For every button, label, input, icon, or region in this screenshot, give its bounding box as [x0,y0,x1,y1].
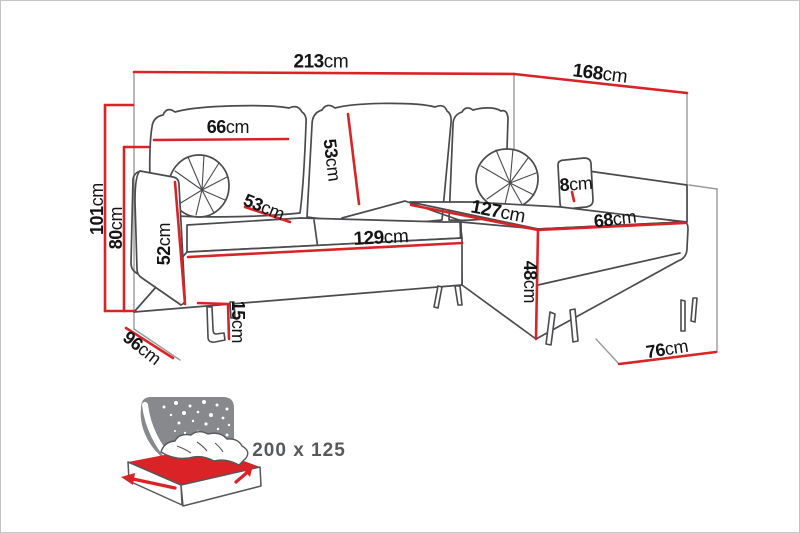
dim-label-armrest-height-52: 52cm [155,223,173,265]
dim-label-back-cushion-width-66: 66cm [207,118,249,136]
box-bottom-right-connector [596,339,619,364]
chaise-leg-right-b [691,298,697,322]
dim-label-leg-height-15: 15cm [229,301,247,343]
dim-label-chaise-width-68: 68cm [593,207,637,230]
dim-label-arm-cushion-8: 8cm [559,174,593,194]
dim-label-chaise-seat-height-48: 48cm [521,261,539,303]
sofa-leg-middle-a [434,286,442,308]
dim-label-seat-width-129: 129cm [353,227,409,249]
dim-label-backrest-height-80: 80cm [107,207,125,249]
bed-size-label: 200 x 125 [252,440,346,462]
sofa-dimension-diagram: 213cm 168cm 101cm 80cm 66cm 53cm 53cm 52… [0,0,800,533]
dim-label-back-cushion-height-53: 53cm [320,138,343,182]
chaise-leg-right-a [681,300,685,331]
dim-label-total-height-101: 101cm [88,183,106,235]
dim-label-back-width-213: 213cm [294,53,349,72]
sofa-bed-icon [121,397,261,506]
sofa-leg-middle-b [455,286,462,305]
box-right-top-connector [689,185,717,189]
sofa-leg-front-left [207,307,225,342]
sofa-line-art [1,1,800,533]
dim-line-back-cushion-width-66 [154,139,288,140]
